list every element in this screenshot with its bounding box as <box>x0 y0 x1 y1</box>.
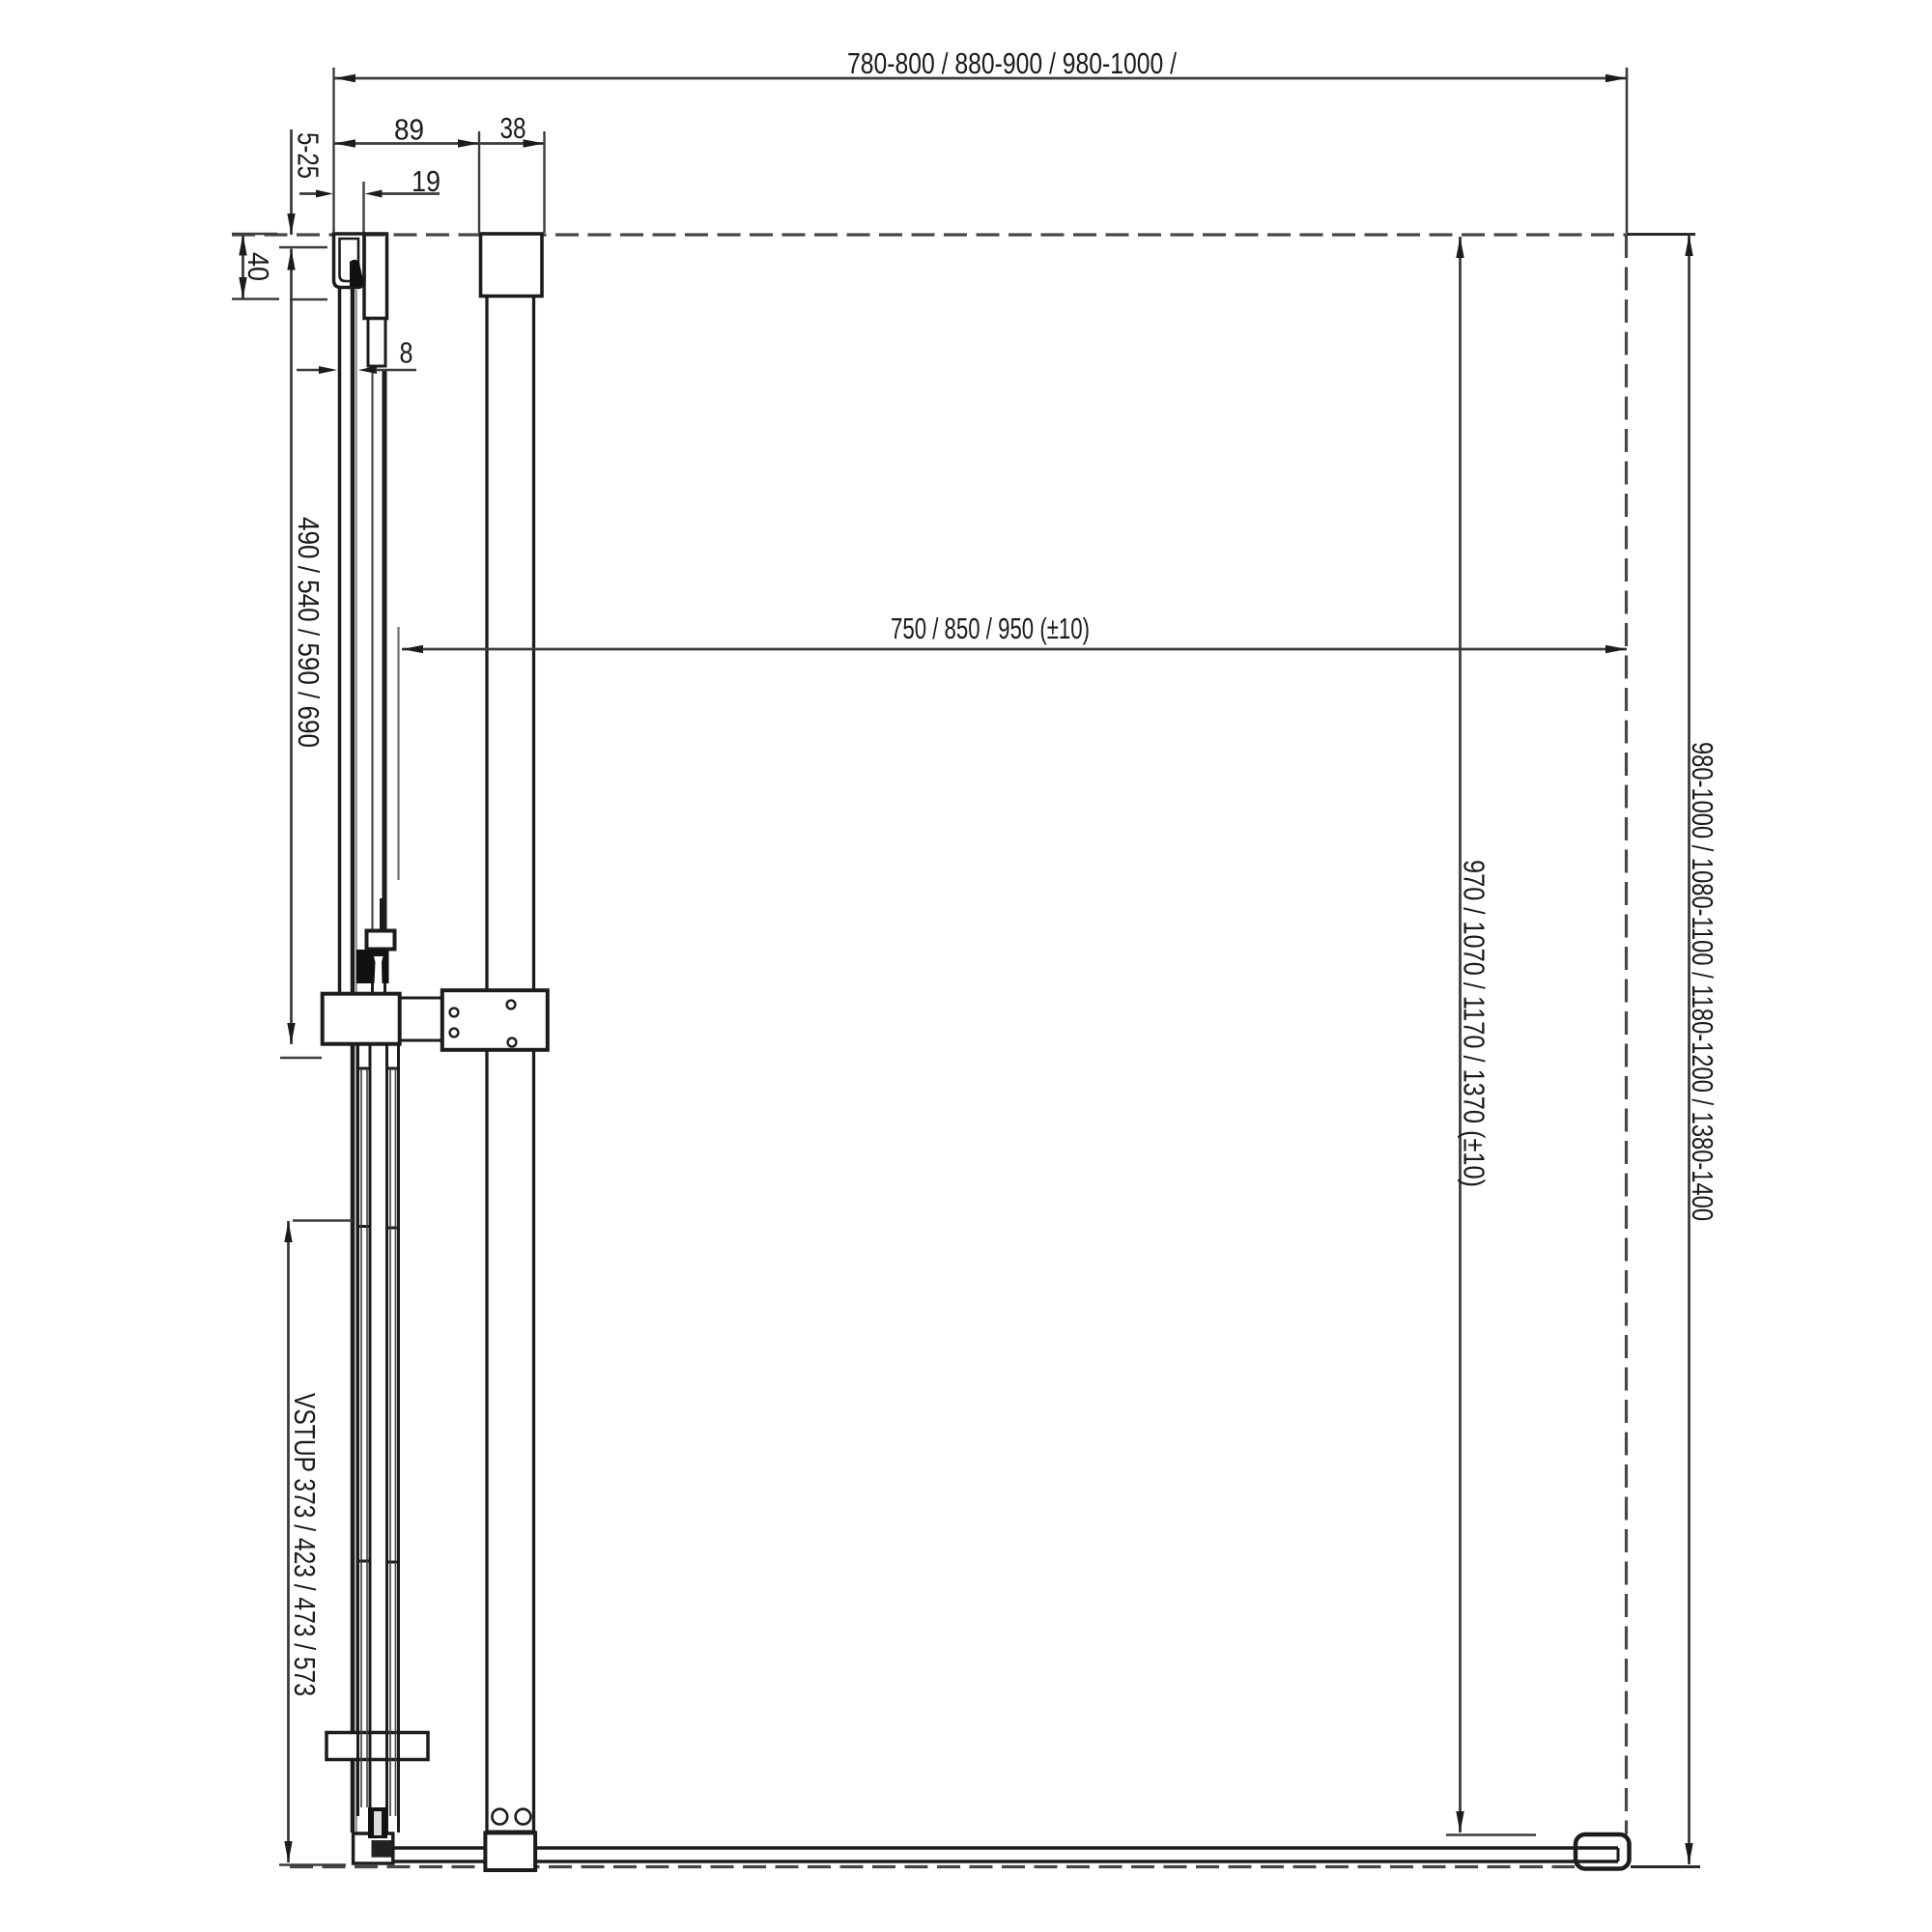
svg-text:19: 19 <box>412 164 440 198</box>
svg-text:970 / 1070 / 1170 / 1370 (±10: 970 / 1070 / 1170 / 1370 (±10) <box>1458 860 1492 1187</box>
svg-text:VSTUP 373 / 423 / 473 / 573: VSTUP 373 / 423 / 473 / 573 <box>288 1393 322 1696</box>
svg-text:980-1000 / 1080-1100 / 1180-12: 980-1000 / 1080-1100 / 1180-1200 / 1380-… <box>1686 742 1719 1221</box>
svg-text:40: 40 <box>241 252 275 281</box>
svg-text:8: 8 <box>400 336 413 370</box>
svg-text:780-800 / 880-900 / 980-1000 /: 780-800 / 880-900 / 980-1000 / <box>847 46 1177 80</box>
svg-text:750 / 850 / 950 (±10): 750 / 850 / 950 (±10) <box>891 611 1090 645</box>
svg-text:5-25: 5-25 <box>292 132 326 179</box>
svg-text:89: 89 <box>394 113 424 147</box>
svg-text:490 / 540 / 590 / 690: 490 / 540 / 590 / 690 <box>292 517 326 748</box>
svg-text:38: 38 <box>500 111 526 145</box>
